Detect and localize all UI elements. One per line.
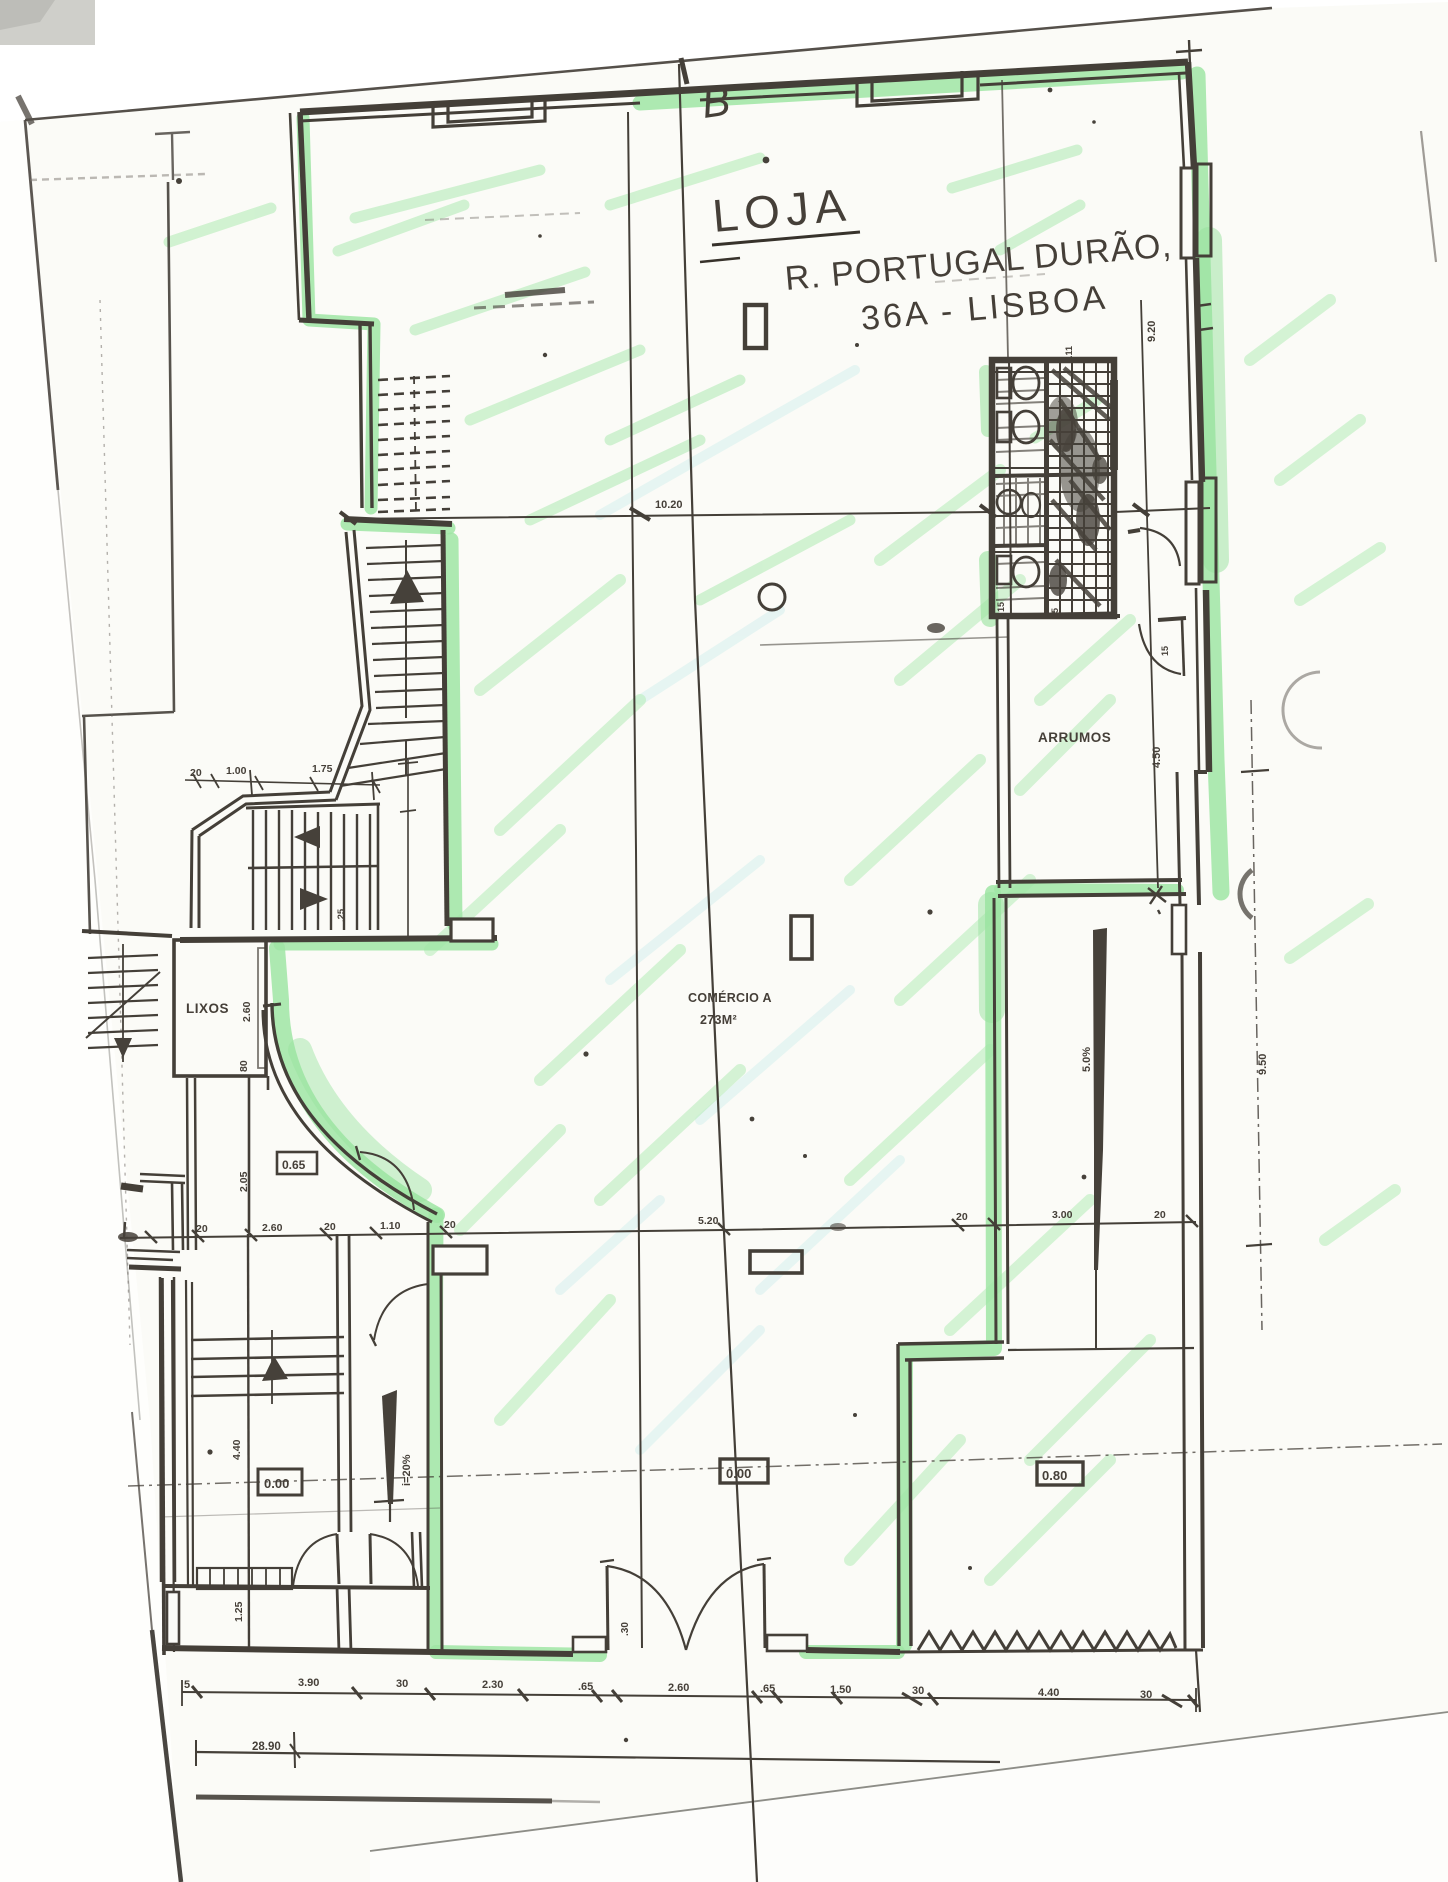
svg-text:273M²: 273M² bbox=[700, 1013, 737, 1027]
svg-text:10.20: 10.20 bbox=[655, 499, 683, 511]
svg-text:2.60: 2.60 bbox=[262, 1222, 283, 1234]
svg-text:0.65: 0.65 bbox=[282, 1158, 306, 1172]
svg-text:.11: .11 bbox=[1064, 346, 1074, 358]
svg-text:28.90: 28.90 bbox=[252, 1741, 281, 1753]
svg-text:2.60: 2.60 bbox=[668, 1682, 689, 1694]
svg-text:0.00: 0.00 bbox=[264, 1476, 289, 1491]
svg-text:LIXOS: LIXOS bbox=[186, 1001, 229, 1016]
svg-text:2.30: 2.30 bbox=[482, 1679, 503, 1691]
svg-text:80: 80 bbox=[238, 1060, 250, 1072]
svg-text:.25: .25 bbox=[336, 908, 347, 922]
svg-text:.65: .65 bbox=[578, 1681, 593, 1693]
svg-text:3.00: 3.00 bbox=[1052, 1209, 1073, 1221]
svg-text:i=20%: i=20% bbox=[401, 1454, 413, 1486]
svg-text:.30: .30 bbox=[620, 1622, 631, 1636]
svg-text:5.0%: 5.0% bbox=[1081, 1047, 1093, 1072]
svg-text:15: 15 bbox=[1050, 608, 1060, 618]
svg-text:1.10: 1.10 bbox=[380, 1220, 401, 1232]
svg-text:1.50: 1.50 bbox=[830, 1684, 851, 1696]
svg-text:4.40: 4.40 bbox=[231, 1439, 243, 1460]
svg-text:1.25: 1.25 bbox=[233, 1601, 245, 1622]
svg-text:COMÉRCIO A: COMÉRCIO A bbox=[688, 990, 772, 1005]
svg-text:9.50: 9.50 bbox=[1257, 1054, 1269, 1075]
svg-text:2.05: 2.05 bbox=[238, 1171, 250, 1192]
svg-text:5: 5 bbox=[184, 1679, 190, 1691]
svg-text:15: 15 bbox=[1160, 646, 1170, 656]
svg-text:9.20: 9.20 bbox=[1146, 321, 1158, 342]
svg-text:20: 20 bbox=[956, 1211, 968, 1223]
svg-text:20: 20 bbox=[190, 767, 202, 779]
svg-text:15: 15 bbox=[996, 602, 1006, 612]
svg-text:4.50: 4.50 bbox=[1151, 747, 1163, 768]
svg-text:3.90: 3.90 bbox=[298, 1677, 319, 1689]
svg-text:20: 20 bbox=[1154, 1209, 1166, 1221]
svg-text:5.20: 5.20 bbox=[698, 1215, 719, 1227]
svg-text:.65: .65 bbox=[760, 1683, 775, 1695]
svg-text:30: 30 bbox=[1140, 1689, 1152, 1701]
svg-text:30: 30 bbox=[396, 1678, 408, 1690]
svg-text:1.00: 1.00 bbox=[226, 765, 247, 777]
svg-text:0.00: 0.00 bbox=[726, 1466, 751, 1481]
svg-text:20: 20 bbox=[324, 1221, 336, 1233]
svg-text:0.80: 0.80 bbox=[1042, 1468, 1067, 1483]
svg-text:1.75: 1.75 bbox=[312, 763, 333, 775]
svg-text:2.60: 2.60 bbox=[241, 1001, 253, 1022]
svg-text:20: 20 bbox=[444, 1219, 456, 1231]
svg-text:20: 20 bbox=[196, 1223, 208, 1235]
svg-text:30: 30 bbox=[912, 1685, 924, 1697]
svg-text:4.40: 4.40 bbox=[1038, 1687, 1059, 1699]
svg-text:ARRUMOS: ARRUMOS bbox=[1038, 730, 1111, 745]
